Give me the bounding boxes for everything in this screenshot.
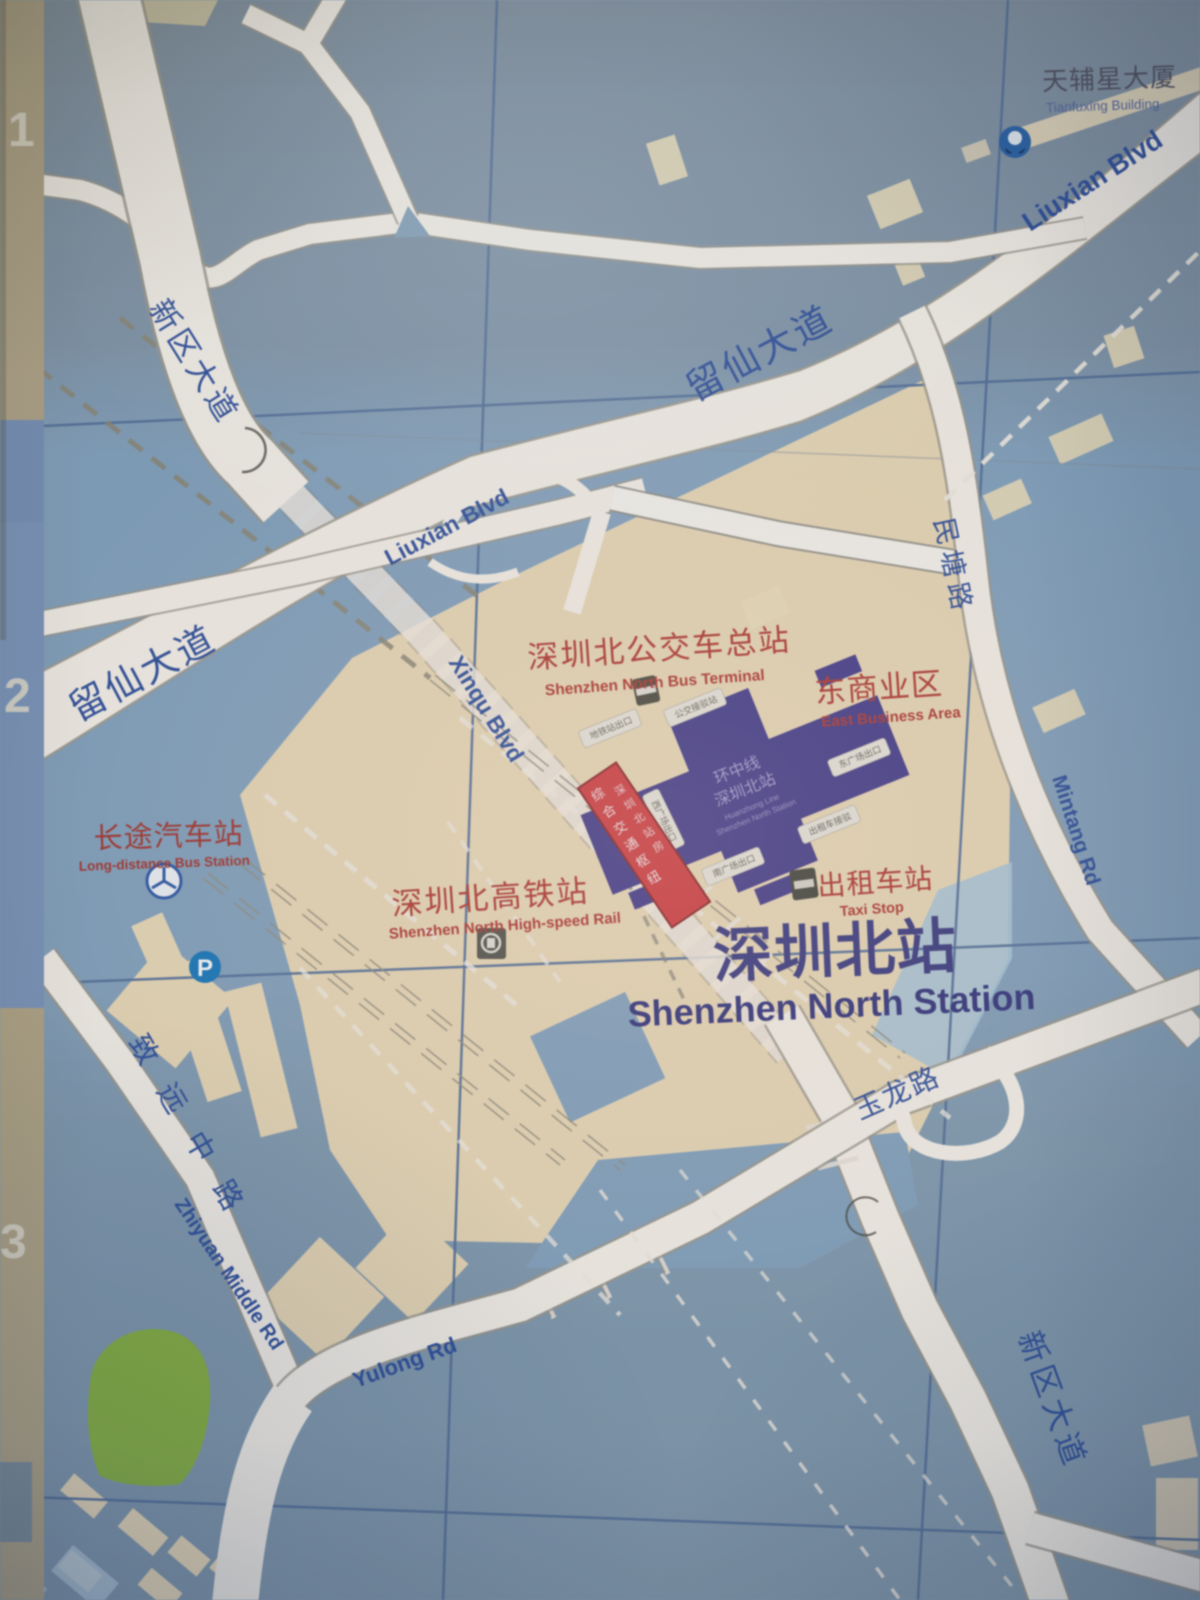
svg-text:天辅星大厦: 天辅星大厦 xyxy=(1041,62,1177,97)
svg-text:1: 1 xyxy=(8,104,35,157)
svg-text:3: 3 xyxy=(0,1216,27,1269)
svg-text:P: P xyxy=(197,955,213,982)
svg-text:深圳北站: 深圳北站 xyxy=(712,912,959,990)
svg-text:2: 2 xyxy=(4,670,31,723)
svg-text:长途汽车站: 长途汽车站 xyxy=(93,817,244,855)
